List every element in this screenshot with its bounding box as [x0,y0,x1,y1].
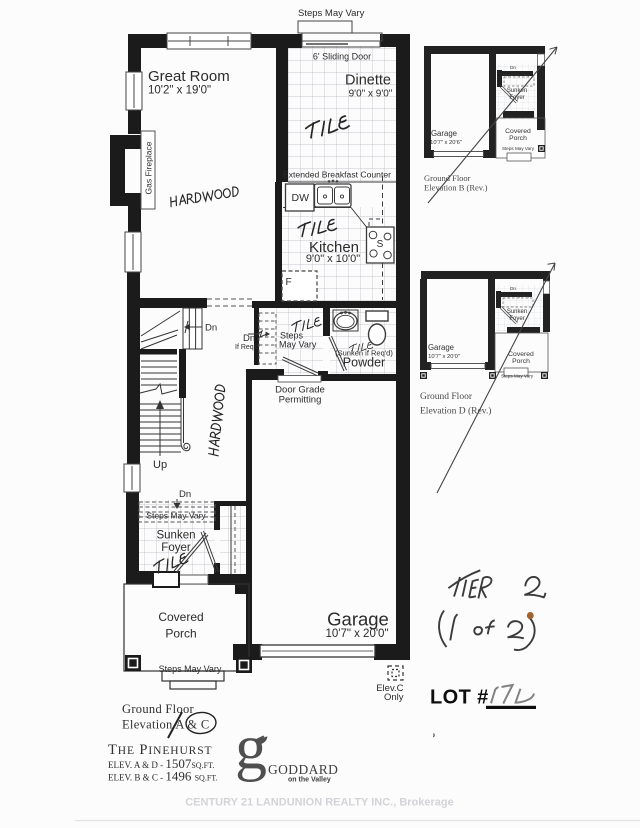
svg-text:Steps May Vary: Steps May Vary [298,8,365,19]
svg-text:GODDARD: GODDARD [268,762,338,777]
svg-text:Steps May Vary: Steps May Vary [502,72,530,77]
svg-text:g: g [235,712,267,783]
svg-text:Porch: Porch [509,135,527,142]
svg-text:Garage: Garage [431,129,457,138]
svg-text:Gas Fireplace: Gas Fireplace [144,141,154,194]
svg-text:Great Room: Great Room [148,68,230,85]
svg-text:Dn: Dn [510,286,516,291]
svg-text:Sunken: Sunken [507,309,527,315]
svg-text:Dn: Dn [205,323,217,334]
svg-text:Foyer: Foyer [161,542,191,554]
svg-text:10'7" x 20'6": 10'7" x 20'6" [430,140,462,146]
svg-text:on the Valley: on the Valley [288,777,331,784]
svg-text:Ground Floor: Ground Floor [122,702,195,716]
svg-text:Sunken: Sunken [507,88,527,94]
svg-text:Garage: Garage [428,343,454,352]
svg-text:Elevation B (Rev.): Elevation B (Rev.) [424,183,488,193]
svg-text:10'7" x 20'0": 10'7" x 20'0" [428,354,460,360]
svg-text:DW: DW [292,192,310,204]
svg-text:ELEV. B & C - 1496 SQ.FT.: ELEV. B & C - 1496 SQ.FT. [108,769,218,784]
svg-text:Porch: Porch [512,358,530,365]
svg-text:Dn: Dn [510,65,516,70]
svg-text:Dn: Dn [179,489,191,500]
svg-text:Dn: Dn [243,333,255,344]
svg-text:Powder: Powder [343,356,385,370]
svg-text:Steps May Vary: Steps May Vary [159,664,222,674]
svg-text:Foyer: Foyer [509,316,524,322]
svg-text:THE PINEHURST: THE PINEHURST [108,742,212,758]
svg-text:CENTURY 21 LANDUNION REALTY IN: CENTURY 21 LANDUNION REALTY INC., Broker… [185,797,454,809]
svg-text:S: S [377,239,384,250]
svg-text:ELEV. A & D - 1507SQ.FT.: ELEV. A & D - 1507SQ.FT. [108,756,214,771]
svg-text:Only: Only [384,692,404,703]
svg-text:F: F [286,277,292,288]
svg-text:9'0" x 10'0": 9'0" x 10'0" [306,253,360,265]
svg-text:Porch: Porch [165,627,196,641]
svg-text:Permitting: Permitting [279,395,322,406]
svg-text:Up: Up [153,459,167,471]
svg-text:Covered: Covered [508,351,534,358]
svg-text:Sunken: Sunken [156,530,195,542]
svg-text:Garage: Garage [327,609,389,630]
svg-text:Covered: Covered [505,128,531,135]
svg-text:LOT #: LOT # [430,687,489,709]
svg-text:Ground Floor: Ground Floor [424,173,471,183]
svg-text:10'7" x 20'0": 10'7" x 20'0" [325,628,388,640]
svg-text:Ground Floor: Ground Floor [420,392,473,402]
svg-text:Elevation D (Rev.): Elevation D (Rev.) [420,406,491,417]
svg-text:May Vary: May Vary [279,340,317,350]
svg-text:6' Sliding Door: 6' Sliding Door [313,52,371,62]
svg-text:9'0" x 9'0": 9'0" x 9'0" [349,89,393,100]
svg-text:Steps May Vary: Steps May Vary [501,374,534,379]
svg-text:Covered: Covered [158,610,203,624]
svg-text:Steps May Vary: Steps May Vary [502,293,530,298]
svg-text:Dinette: Dinette [345,73,391,89]
svg-text:Steps May Vary: Steps May Vary [502,146,535,151]
svg-text:Elevation A & C: Elevation A & C [122,718,209,732]
svg-text:10'2" x 19'0": 10'2" x 19'0" [148,85,211,97]
svg-text:Extended Breakfast Counter: Extended Breakfast Counter [283,170,391,180]
svg-text:If Req'd: If Req'd [235,344,259,351]
